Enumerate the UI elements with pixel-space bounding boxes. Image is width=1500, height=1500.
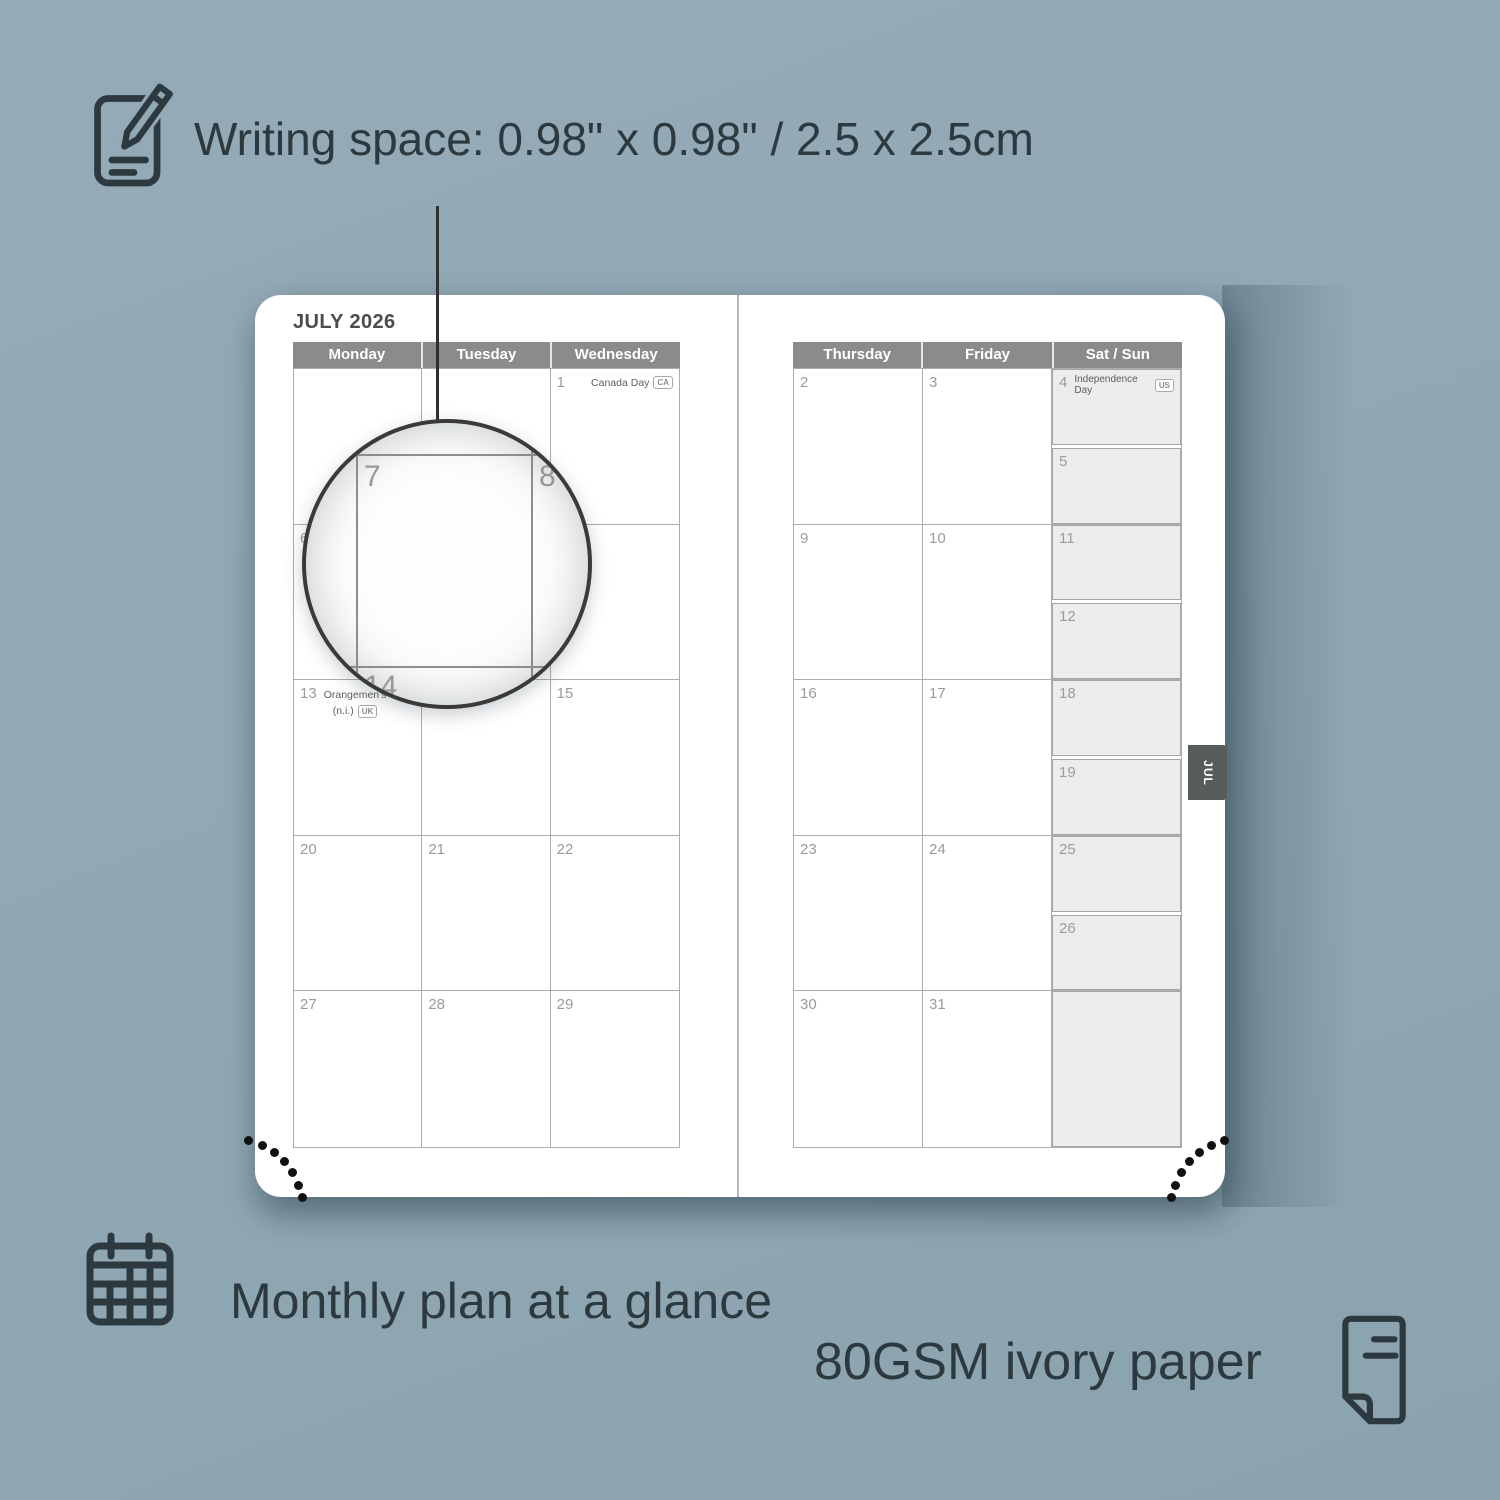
magnified-grid-line [306,454,588,456]
stitch-dot [270,1148,279,1157]
header-satsun: Sat / Sun [1052,342,1182,368]
holiday-independence-day: Independence Day US [1074,374,1174,396]
header-friday: Friday [921,342,1051,368]
satsun-merged-half [1052,991,1181,1147]
day-cell: 17 [923,680,1052,836]
stitch-dot [1220,1136,1229,1145]
stitch-dot [258,1141,267,1150]
sunday-half: 5 [1052,448,1181,524]
stitch-dot [1207,1141,1216,1150]
sunday-half: 12 [1052,603,1181,679]
day-cell: 31 [923,991,1052,1147]
pointer-line [436,206,439,422]
day-cell: 27 [294,991,422,1147]
satsun-cell: 4 Independence Day US 5 [1052,369,1181,525]
magnified-grid-line [531,423,533,705]
day-cell-jul13: 13 Orangemen's (n.i.) UK [294,680,422,836]
header-wednesday: Wednesday [550,342,680,368]
stitch-dot [1171,1181,1180,1190]
day-cell: 3 [923,369,1052,525]
stitch-dot [280,1157,289,1166]
day-cell: 10 [923,525,1052,681]
magnified-grid-line [306,666,588,668]
day-cell: 29 [551,991,679,1147]
day-cell: 21 [422,836,550,992]
day-cell: 28 [422,991,550,1147]
note-pencil-icon [86,76,182,194]
day-cell: 16 [794,680,923,836]
satsun-cell: 25 26 [1052,836,1181,992]
stitch-dot [294,1181,303,1190]
day-cell: 22 [551,836,679,992]
sunday-half: 26 [1052,915,1181,991]
monthly-plan-label: Monthly plan at a glance [230,1272,772,1330]
day-cell: 20 [294,836,422,992]
country-badge: CA [653,376,673,389]
page-gutter [737,295,739,1197]
book-edge-shadow [1222,285,1352,1207]
stitch-dot [298,1193,307,1202]
holiday-canada-day: Canada Day CA [591,376,673,389]
saturday-half: 4 Independence Day US [1052,369,1181,445]
country-badge: UK [358,705,378,718]
left-day-headers: Monday Tuesday Wednesday [293,342,680,368]
calendar-icon [80,1232,180,1332]
header-tuesday: Tuesday [421,342,551,368]
right-day-headers: Thursday Friday Sat / Sun [793,342,1182,368]
stitch-dot [288,1168,297,1177]
magnified-day-14: 14 [364,670,397,704]
country-badge: US [1155,379,1174,392]
month-tab-label: JUL [1200,760,1214,786]
paper-icon [1331,1314,1417,1426]
magnified-grid-line [356,423,358,705]
product-image: Writing space: 0.98" x 0.98" / 2.5 x 2.5… [0,0,1500,1500]
satsun-cell: 18 19 [1052,680,1181,836]
writing-space-label: Writing space: 0.98" x 0.98" / 2.5 x 2.5… [194,112,1034,166]
stitch-dot [1185,1157,1194,1166]
day-cell: 9 [794,525,923,681]
day-cell: 15 [551,680,679,836]
saturday-half: 18 [1052,680,1181,756]
satsun-cell: 11 12 [1052,525,1181,681]
sunday-half: 19 [1052,759,1181,835]
satsun-cell [1052,991,1181,1147]
stitch-dot [1167,1193,1176,1202]
day-cell: 23 [794,836,923,992]
day-cell: 30 [794,991,923,1147]
day-cell: 2 [794,369,923,525]
header-monday: Monday [293,342,421,368]
saturday-half: 25 [1052,836,1181,912]
stitch-dot [1177,1168,1186,1177]
magnified-day-7: 7 [364,460,381,494]
month-tab: JUL [1188,745,1227,800]
saturday-half: 11 [1052,525,1181,601]
day-cell: 24 [923,836,1052,992]
magnifier-circle: 7 8 14 [302,419,592,709]
stitch-dot [1195,1148,1204,1157]
magnified-day-8: 8 [539,460,556,494]
stitch-dot [244,1136,253,1145]
right-calendar-grid: 2 3 4 Independence Day US 5 9 10 11 [793,368,1182,1148]
month-title: JULY 2026 [293,311,396,334]
header-thursday: Thursday [793,342,921,368]
paper-label: 80GSM ivory paper [814,1332,1262,1392]
